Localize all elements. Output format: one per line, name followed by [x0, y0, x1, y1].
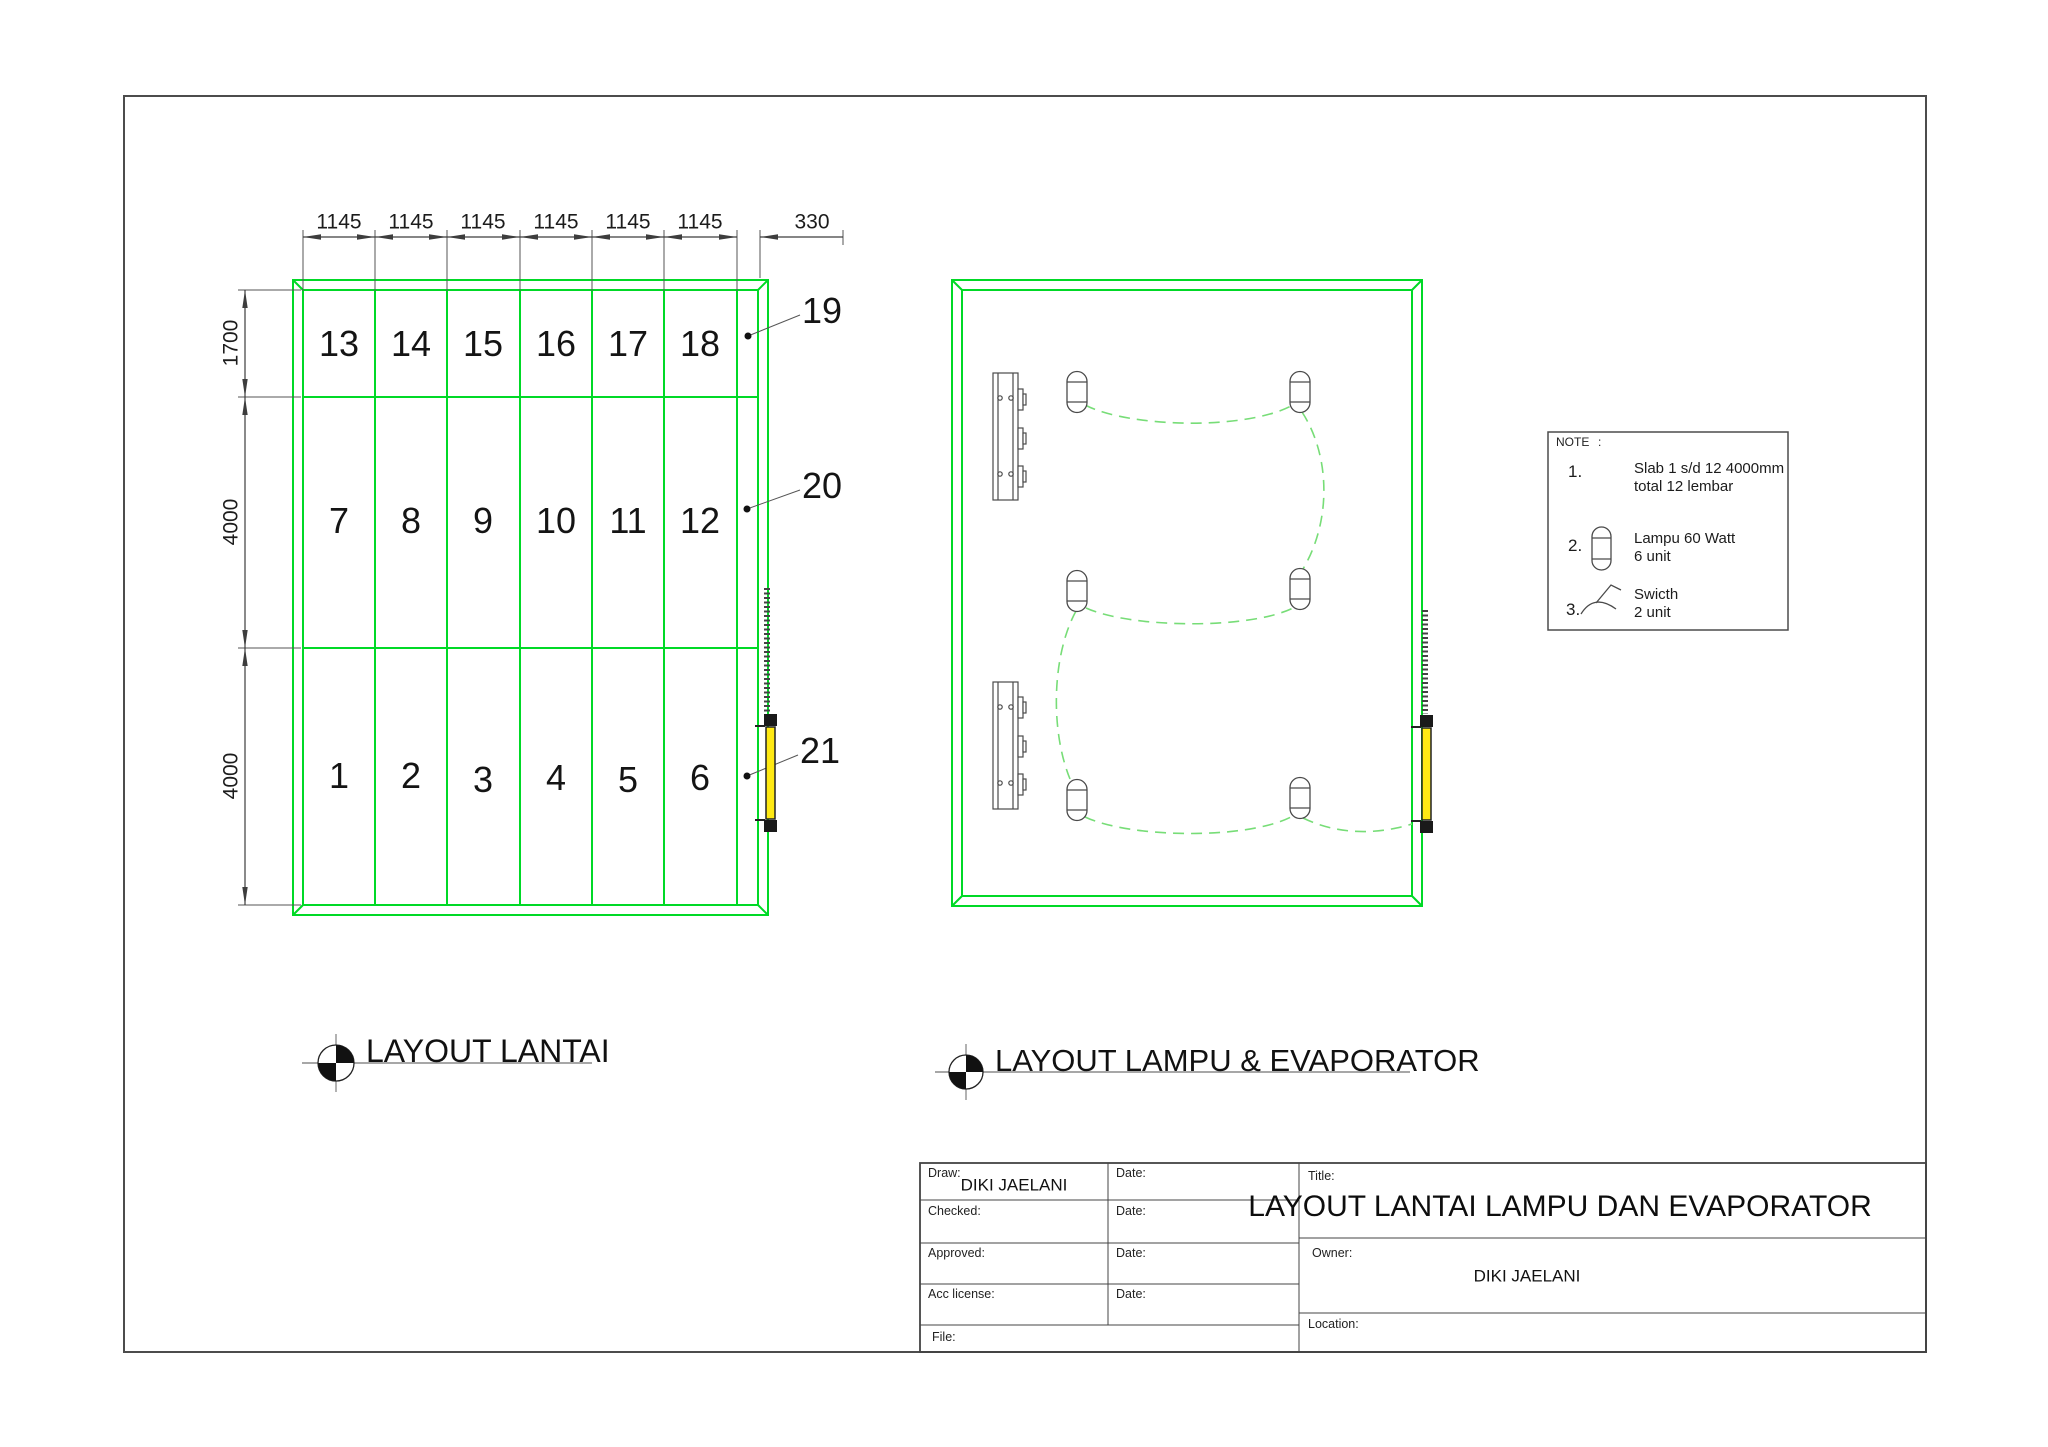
- slab-number: 3: [473, 762, 493, 798]
- note-item-text: 2 unit: [1634, 605, 1671, 620]
- floor-plan-linework: [293, 280, 768, 915]
- note-item-text: 6 unit: [1634, 549, 1671, 564]
- lamp-symbols: [1067, 372, 1310, 821]
- note-item-text: Lampu 60 Watt: [1634, 531, 1735, 546]
- titleblock-location-label: Location:: [1308, 1318, 1359, 1331]
- titleblock-draw-label: Draw:: [928, 1167, 961, 1180]
- lamp-wiring: [1056, 405, 1412, 834]
- lamp-symbol: [1290, 569, 1310, 610]
- titleblock-title-value: LAYOUT LANTAI LAMPU DAN EVAPORATOR: [1248, 1192, 1871, 1222]
- note-item-number: 3.: [1566, 601, 1580, 618]
- slab-number: 8: [401, 503, 421, 539]
- lamp-symbol: [1290, 372, 1310, 413]
- slab-number: 4: [546, 760, 566, 796]
- dim-label: 1145: [316, 212, 361, 233]
- titleblock-date-label: Date:: [1116, 1288, 1146, 1301]
- slab-number: 11: [609, 503, 646, 539]
- slab-number: 17: [608, 326, 648, 362]
- titleblock-owner-label: Owner:: [1312, 1247, 1352, 1260]
- note-item-number: 2.: [1568, 537, 1582, 554]
- slab-number: 5: [618, 762, 638, 798]
- slab-number: 2: [401, 758, 421, 794]
- note-item-text: Swicth: [1634, 587, 1678, 602]
- titleblock-owner-value: DIKI JAELANI: [1474, 1268, 1581, 1285]
- note-switch-symbol: [1581, 585, 1621, 614]
- left-dimension-lines: [238, 290, 301, 905]
- note-item-number: 1.: [1568, 463, 1582, 480]
- slab-number: 1: [329, 758, 349, 794]
- dim-label: 1145: [388, 212, 433, 233]
- lamp-plan-linework: [952, 280, 1422, 906]
- slab-number: 13: [319, 326, 359, 362]
- lamp-symbol: [1067, 372, 1087, 413]
- callout-number: 20: [802, 468, 842, 504]
- dim-label: 1145: [460, 212, 505, 233]
- slab-number: 6: [690, 760, 710, 796]
- view-title-floor: LAYOUT LANTAI: [366, 1035, 610, 1067]
- dim-label-vertical: 4000: [221, 499, 242, 546]
- titleblock-title-label: Title:: [1308, 1170, 1335, 1183]
- titleblock-file-label: File:: [932, 1331, 956, 1344]
- titleblock-acc-label: Acc license:: [928, 1288, 995, 1301]
- note-item-text: total 12 lembar: [1634, 479, 1733, 494]
- lamp-symbol: [1067, 571, 1087, 612]
- cad-sheet: { "drawing1": { "title": "LAYOUT LANTAI"…: [0, 0, 2048, 1447]
- note-lamp-symbol: [1592, 527, 1611, 570]
- dim-label-vertical: 1700: [221, 320, 242, 367]
- top-dimension-lines: [303, 230, 843, 291]
- slab-number: 18: [680, 326, 720, 362]
- titleblock-date-label: Date:: [1116, 1247, 1146, 1260]
- slab-number: 9: [473, 503, 493, 539]
- lamp-plan-door: [1411, 610, 1433, 833]
- titleblock-date-label: Date:: [1116, 1167, 1146, 1180]
- slab-number: 15: [463, 326, 503, 362]
- dim-label-vertical: 4000: [221, 753, 242, 800]
- callout-number: 19: [802, 293, 842, 329]
- slab-number: 7: [329, 503, 349, 539]
- titleblock-date-label: Date:: [1116, 1205, 1146, 1218]
- titleblock-approved-label: Approved:: [928, 1247, 985, 1260]
- dim-label: 1145: [677, 212, 722, 233]
- evaporator-unit-bottom: [993, 682, 1026, 809]
- slab-number: 12: [680, 503, 720, 539]
- slab-number: 16: [536, 326, 576, 362]
- sheet-linework: [0, 0, 2048, 1447]
- note-label: NOTE: [1556, 436, 1589, 448]
- lamp-symbol: [1067, 780, 1087, 821]
- lamp-symbol: [1290, 778, 1310, 819]
- slab-number: 14: [391, 326, 431, 362]
- dim-label: 1145: [533, 212, 578, 233]
- titleblock-checked-label: Checked:: [928, 1205, 981, 1218]
- callout-number: 21: [800, 733, 840, 769]
- titleblock-draw-value: DIKI JAELANI: [961, 1177, 1068, 1194]
- note-colon: :: [1598, 436, 1601, 448]
- note-item-text: Slab 1 s/d 12 4000mm: [1634, 461, 1784, 476]
- evaporator-unit-top: [993, 373, 1026, 500]
- view-title-lamp: LAYOUT LAMPU & EVAPORATOR: [995, 1045, 1480, 1076]
- dim-label: 1145: [605, 212, 650, 233]
- slab-number: 10: [536, 503, 576, 539]
- dim-label-offset: 330: [794, 212, 829, 233]
- callout-leaders: [744, 315, 801, 780]
